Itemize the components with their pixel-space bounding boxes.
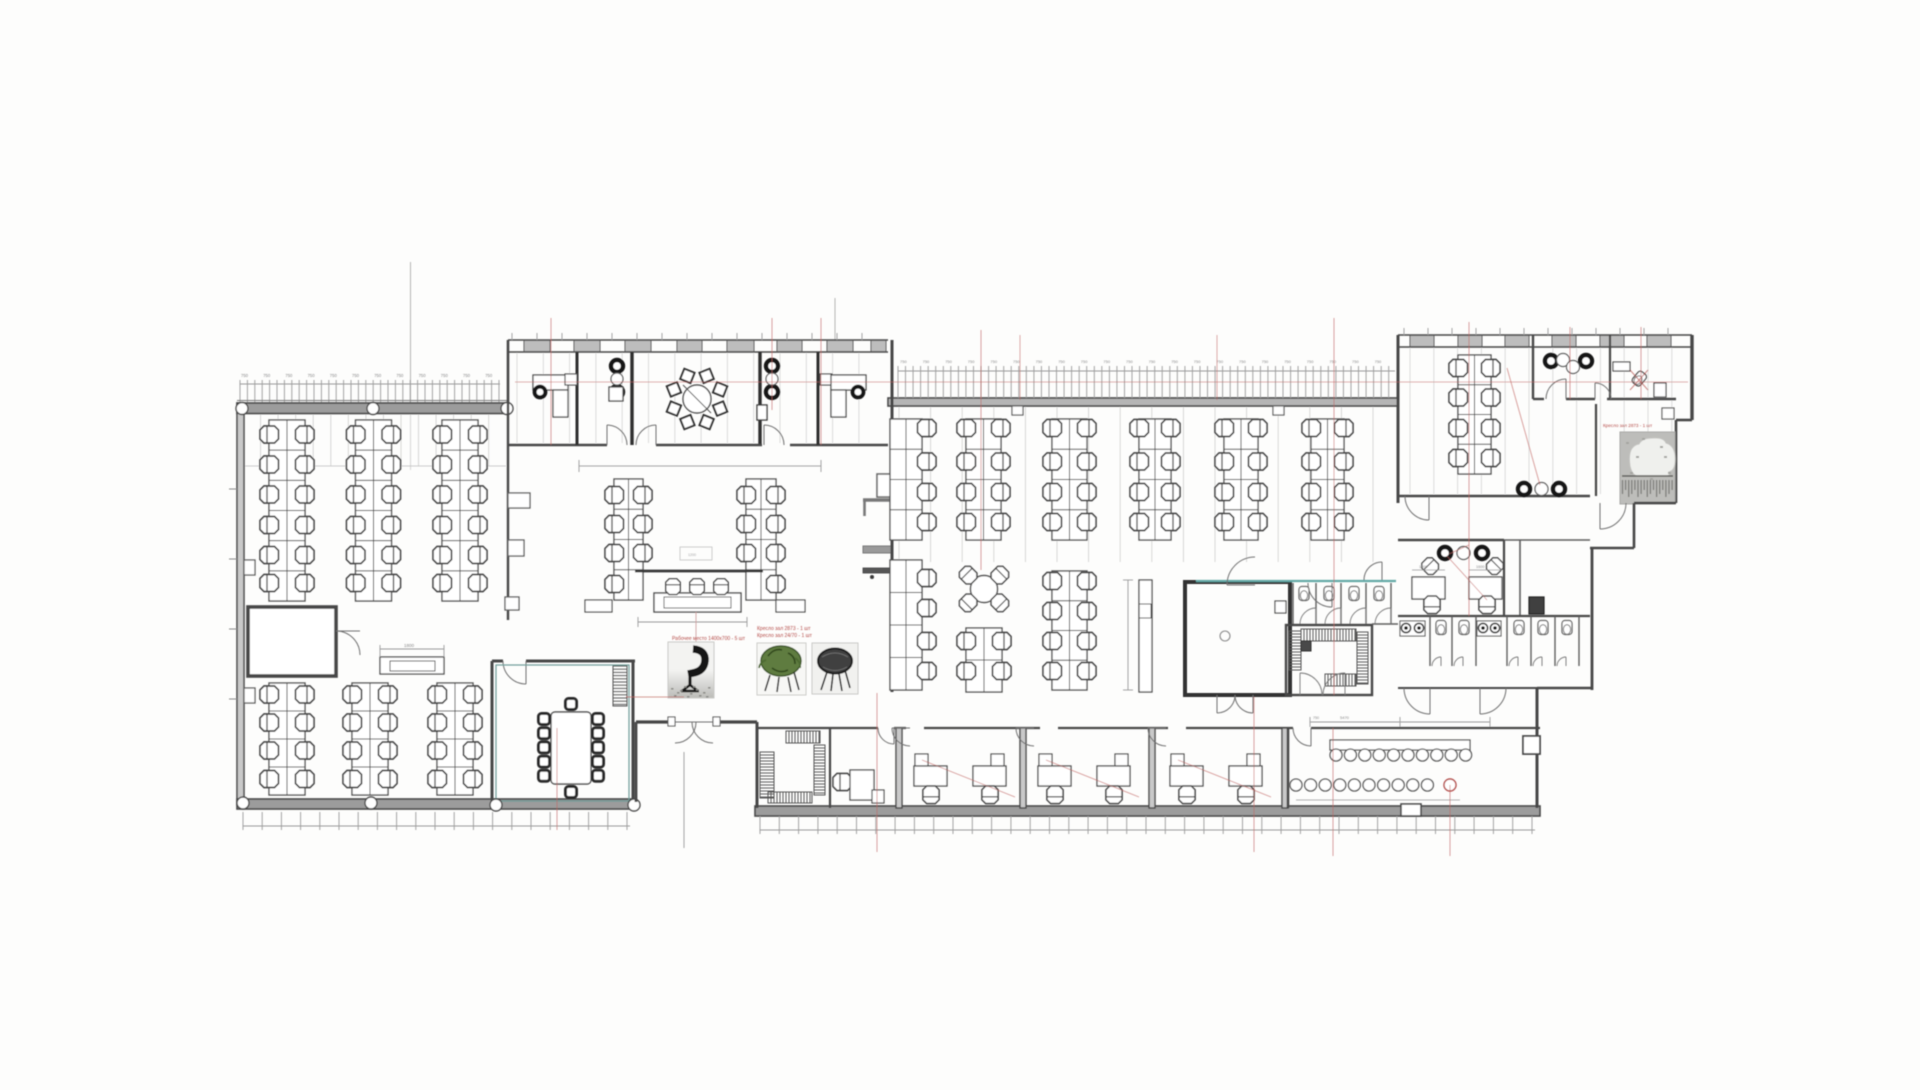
svg-text:Рабочее место 1400х700 - 5 шт: Рабочее место 1400х700 - 5 шт — [672, 636, 746, 642]
svg-text:750: 750 — [1171, 359, 1178, 364]
svg-text:750: 750 — [1013, 359, 1020, 364]
svg-text:750: 750 — [1216, 359, 1223, 364]
svg-text:750: 750 — [241, 373, 249, 378]
svg-text:750: 750 — [1058, 359, 1065, 364]
svg-text:750: 750 — [1036, 359, 1043, 364]
svg-text:750: 750 — [1375, 359, 1382, 364]
svg-text:750: 750 — [1284, 359, 1291, 364]
svg-text:1600: 1600 — [1476, 565, 1484, 569]
svg-text:750: 750 — [1329, 359, 1336, 364]
svg-text:750: 750 — [1149, 359, 1156, 364]
svg-text:750: 750 — [463, 373, 471, 378]
svg-text:750: 750 — [923, 359, 930, 364]
svg-text:750: 750 — [441, 373, 449, 378]
svg-text:Кресло зал 2873 - 1 шт: Кресло зал 2873 - 1 шт — [757, 626, 811, 632]
svg-text:750: 750 — [330, 373, 338, 378]
svg-text:750: 750 — [1081, 359, 1088, 364]
svg-text:750: 750 — [990, 359, 997, 364]
svg-text:1200: 1200 — [688, 553, 696, 557]
svg-text:750: 750 — [1194, 359, 1201, 364]
svg-text:750: 750 — [396, 373, 404, 378]
svg-text:750: 750 — [1262, 359, 1269, 364]
svg-text:750: 750 — [485, 373, 493, 378]
svg-text:1800: 1800 — [404, 643, 415, 648]
svg-text:750: 750 — [1126, 359, 1133, 364]
svg-text:750: 750 — [352, 373, 360, 378]
svg-text:5470: 5470 — [1340, 715, 1350, 720]
svg-text:Кресло зал 24/70 - 1 шт: Кресло зал 24/70 - 1 шт — [757, 633, 813, 639]
svg-text:Кресло зал 2873 - 1 шт: Кресло зал 2873 - 1 шт — [1603, 423, 1653, 428]
svg-text:750: 750 — [374, 373, 382, 378]
svg-text:750: 750 — [1307, 359, 1314, 364]
svg-text:750: 750 — [1239, 359, 1246, 364]
svg-text:750: 750 — [1103, 359, 1110, 364]
svg-text:750: 750 — [308, 373, 316, 378]
svg-text:750: 750 — [263, 373, 271, 378]
svg-text:750: 750 — [1313, 716, 1319, 720]
svg-text:750: 750 — [1352, 359, 1359, 364]
svg-text:750: 750 — [945, 359, 952, 364]
svg-text:750: 750 — [419, 373, 427, 378]
svg-text:1600: 1600 — [1419, 565, 1427, 569]
svg-text:750: 750 — [900, 359, 907, 364]
svg-text:750: 750 — [968, 359, 975, 364]
svg-text:750: 750 — [285, 373, 293, 378]
